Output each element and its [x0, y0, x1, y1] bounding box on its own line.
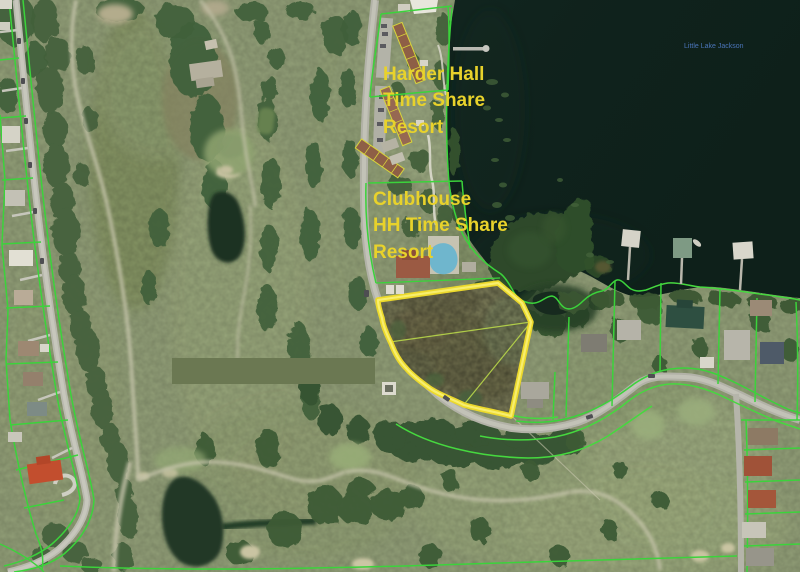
svg-text:Clubhouse: Clubhouse [373, 189, 471, 210]
svg-text:Resort: Resort [383, 117, 444, 138]
svg-text:Little Lake Jackson: Little Lake Jackson [684, 43, 744, 50]
svg-text:Harder Hall: Harder Hall [383, 64, 484, 85]
svg-text:HH Time Share: HH Time Share [373, 215, 508, 236]
svg-text:Time Share: Time Share [383, 90, 485, 111]
svg-text:Resort: Resort [373, 242, 434, 263]
